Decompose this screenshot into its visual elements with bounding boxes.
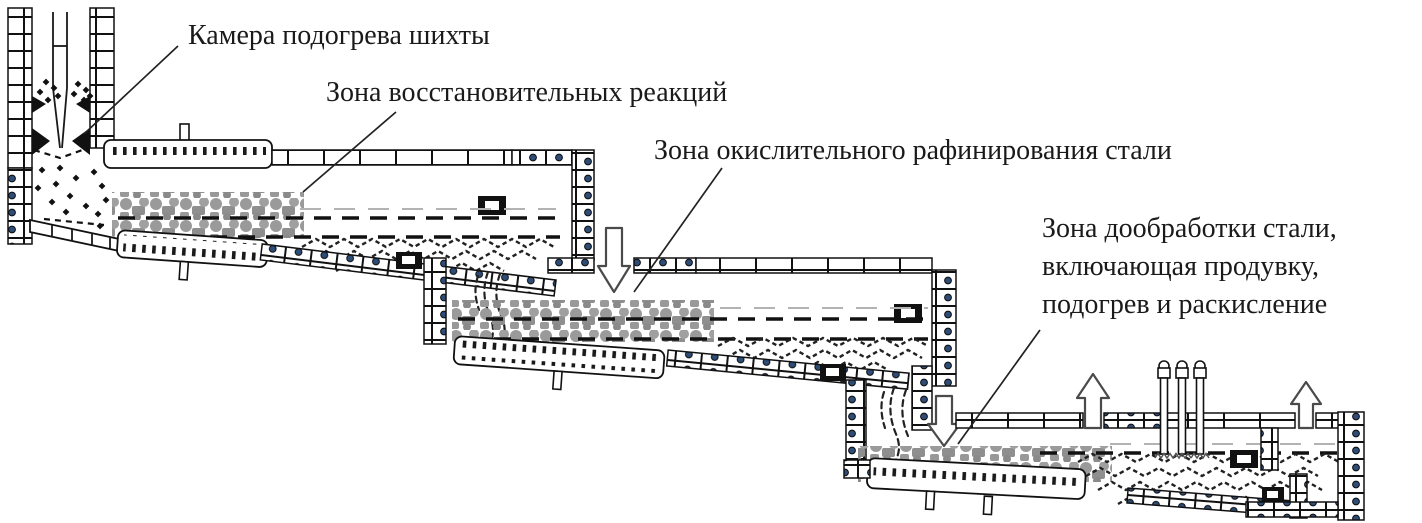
label-finishing-zone: Зона дообработки стали, включающая проду… — [1042, 213, 1337, 320]
bath-waves-3b — [1086, 468, 1318, 476]
label-finishing-line2: включающая продувку, — [1042, 251, 1319, 282]
chamber-left-wall — [8, 8, 32, 168]
bottom-peg-3b — [983, 496, 992, 514]
burner-port-1b — [396, 252, 422, 269]
chamber-bottom-slope — [30, 220, 124, 252]
roof-bricks-1 — [272, 150, 512, 165]
hanging-partition-wall — [1261, 428, 1278, 470]
roof-bricks-2-bolted-a — [548, 258, 594, 273]
burner-port-3a — [1230, 450, 1258, 468]
bottom-cooling-tray-2 — [452, 336, 665, 397]
burner-port-1a — [478, 196, 506, 215]
roof-bricks-3-bolted — [1104, 413, 1162, 428]
charge-piles — [32, 96, 90, 155]
roof-bricks-2-bolted-b — [634, 258, 696, 273]
gas-flow-down-arrow-2 — [928, 396, 960, 446]
label-finishing-line3: подогрев и раскисление — [1042, 289, 1327, 320]
bath-waves-2b — [726, 350, 922, 358]
label-finishing-line1: Зона дообработки стали, — [1042, 213, 1337, 244]
section2-front-wall — [424, 258, 446, 344]
blowing-lances — [1155, 361, 1209, 458]
furnace-end-wall — [1338, 412, 1364, 520]
bottom-peg-2 — [553, 371, 562, 390]
bottom-cooling-tray-1 — [115, 230, 268, 285]
furnace-diagram: Камера подогрева шихты Зона восстановите… — [0, 0, 1422, 523]
charge-feed-pipe — [53, 12, 67, 148]
burner-port-2b — [820, 364, 846, 381]
feed-funnel-dashed — [34, 148, 88, 158]
section1-end-wall — [572, 150, 594, 260]
slag-foam-layer-2 — [452, 300, 714, 342]
section2-step-column — [912, 366, 932, 430]
chamber-right-wall — [90, 8, 114, 148]
charge-preheat-chamber — [8, 8, 124, 252]
label-preheat-chamber: Камера подогрева шихты — [188, 20, 490, 51]
roof-bricks-1-bolted — [512, 150, 572, 165]
roof-bricks-2 — [696, 258, 932, 273]
label-oxidation-zone: Зона окислительного рафинирования стали — [654, 135, 1172, 166]
bottom-bricks-3 — [1246, 502, 1338, 517]
gas-flow-down-arrow-1 — [598, 228, 630, 292]
roof-cooling-tray-1 — [104, 124, 272, 168]
section2-end-wall — [932, 270, 956, 386]
bath-waves-1a — [302, 239, 554, 247]
label-reduction-zone: Зона восстановительных реакций — [326, 77, 727, 108]
bottom-peg-3a — [926, 491, 935, 509]
section3-corner-bricks — [844, 460, 870, 478]
roof-bricks-3c — [1316, 413, 1340, 428]
burner-port-3b — [1262, 487, 1284, 502]
bottom-cooling-tray-3 — [866, 458, 1086, 519]
chamber-left-wall-lower — [8, 168, 32, 244]
bottom-peg-1 — [179, 261, 188, 280]
